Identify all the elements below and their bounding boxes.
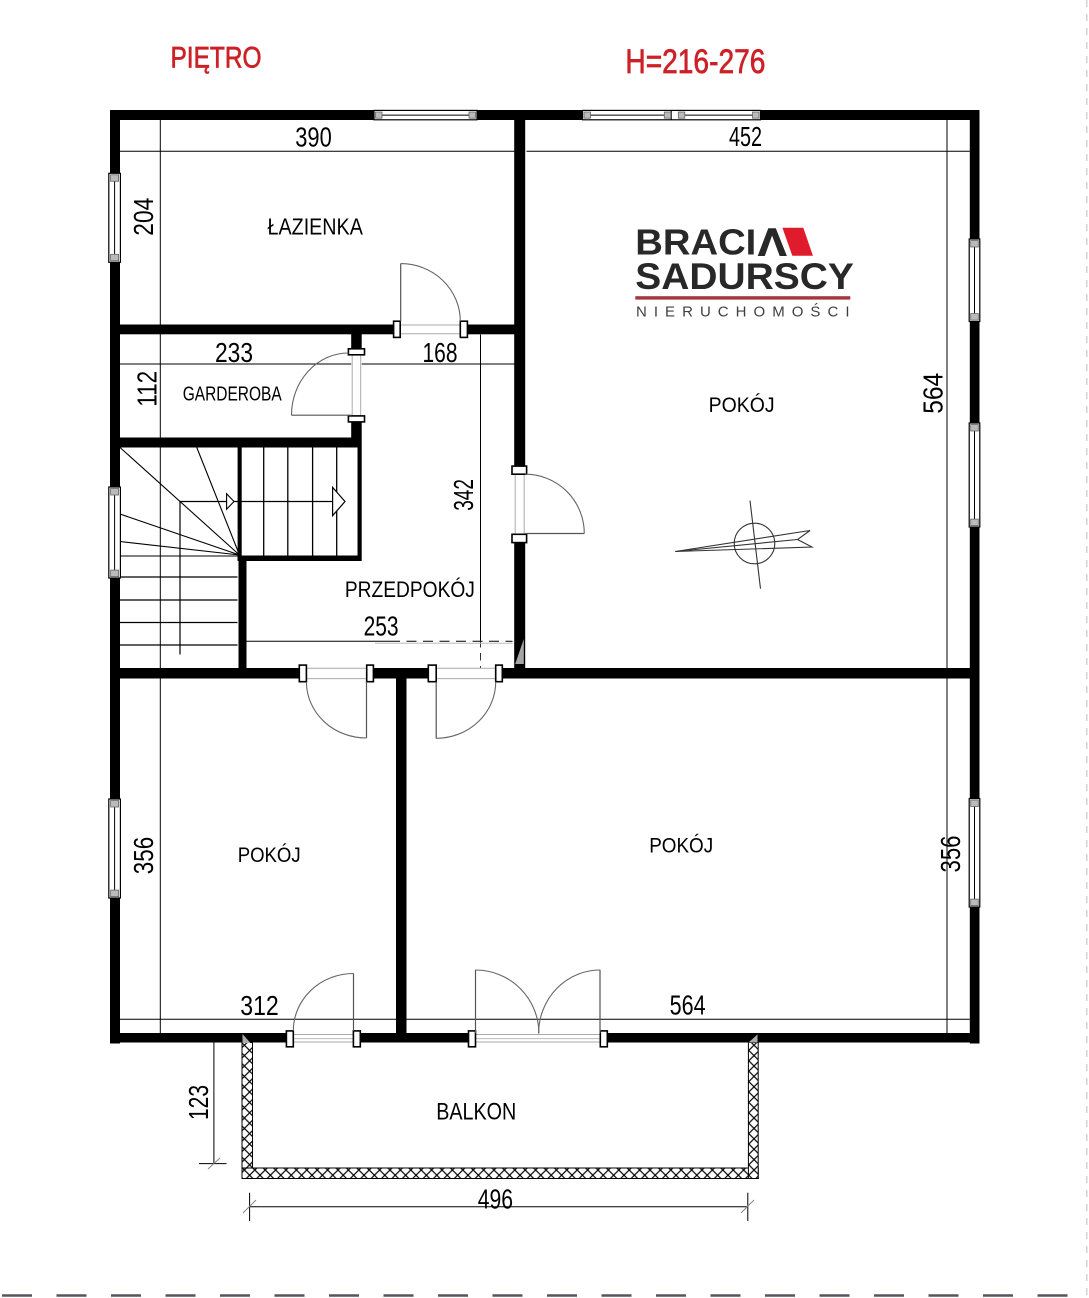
svg-text:PRZEDPOKÓJ: PRZEDPOKÓJ (345, 577, 475, 602)
svg-text:564: 564 (670, 990, 706, 1021)
svg-text:BALKON: BALKON (436, 1099, 516, 1126)
svg-text:342: 342 (448, 479, 479, 511)
svg-text:H=216-276: H=216-276 (625, 43, 765, 81)
svg-text:POKÓJ: POKÓJ (709, 392, 775, 417)
svg-text:452: 452 (729, 121, 762, 152)
svg-text:ŁAZIENKA: ŁAZIENKA (268, 213, 364, 239)
svg-text:POKÓJ: POKÓJ (238, 842, 301, 867)
svg-text:GARDEROBA: GARDEROBA (183, 384, 283, 406)
svg-text:168: 168 (423, 337, 458, 368)
svg-text:253: 253 (364, 611, 399, 642)
svg-text:312: 312 (240, 990, 279, 1021)
svg-text:564: 564 (918, 373, 949, 414)
svg-text:112: 112 (131, 371, 162, 407)
svg-text:204: 204 (128, 198, 159, 236)
svg-text:356: 356 (935, 836, 966, 873)
svg-text:123: 123 (183, 1085, 214, 1120)
svg-text:PIĘTRO: PIĘTRO (171, 42, 262, 75)
svg-text:496: 496 (478, 1184, 513, 1215)
svg-text:SADURSCY: SADURSCY (635, 256, 854, 297)
svg-text:233: 233 (215, 337, 253, 368)
svg-text:390: 390 (295, 122, 332, 153)
svg-text:NIERUCHOMOŚCI: NIERUCHOMOŚCI (636, 303, 850, 321)
svg-text:356: 356 (128, 837, 159, 874)
svg-text:POKÓJ: POKÓJ (649, 833, 713, 858)
